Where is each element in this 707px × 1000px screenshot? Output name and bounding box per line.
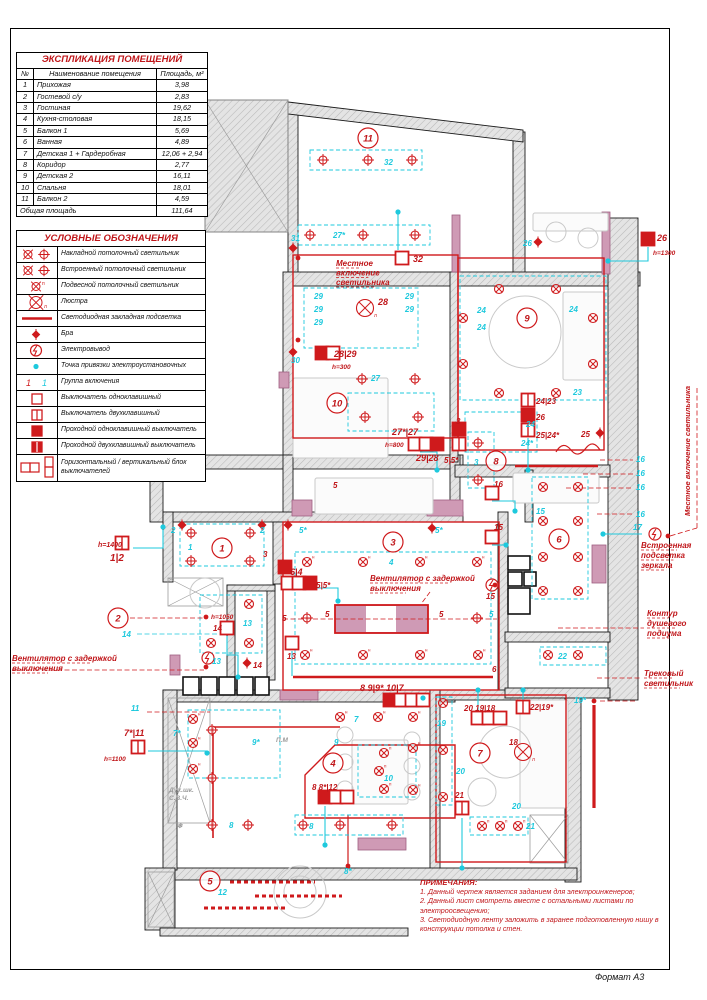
- room-number: 11: [363, 134, 373, 145]
- furniture: [337, 727, 353, 743]
- wall: [160, 928, 408, 936]
- room-table-col-header: №: [17, 68, 34, 79]
- surface-ceiling-light-icon: [334, 819, 346, 831]
- appliance-box: [183, 677, 199, 695]
- appliance-box: [237, 677, 253, 695]
- switch-group-label: h=1050: [211, 614, 234, 621]
- group-number-label: 16: [636, 455, 645, 464]
- anchor-point-icon: [605, 258, 610, 263]
- switch-block-icon: [494, 712, 507, 725]
- recessed-ceiling-light-icon: [589, 314, 598, 323]
- surface-ceiling-light-icon: [206, 772, 218, 784]
- group-number-label: 19*: [574, 696, 587, 705]
- switch-group-label: 26: [535, 413, 545, 422]
- group-number-label: 4: [388, 558, 394, 567]
- annotation-text: Вентилятор с задержкой: [370, 574, 475, 583]
- anchor-point-icon: [160, 524, 165, 529]
- switch-group-label: 5: [333, 481, 338, 490]
- svg-text:п: п: [42, 281, 45, 287]
- group-number-label: 27: [370, 374, 380, 383]
- table-cell: Балкон 2: [34, 194, 157, 205]
- surface-ceiling-light-icon-sup: н: [368, 555, 371, 560]
- note-item: 2. Данный лист смотреть вместе с остальн…: [420, 896, 666, 915]
- table-cell: Кухня-столовая: [34, 114, 157, 125]
- wall: [505, 632, 610, 642]
- table-cell: 4: [17, 114, 34, 125]
- new-partition: [292, 500, 312, 516]
- appliance-label: Дух.шк.: [168, 787, 194, 794]
- table-cell: Спальня: [34, 182, 157, 193]
- red-anchor-dot: [592, 699, 597, 704]
- group-number-label: 12: [218, 888, 227, 897]
- red-anchor-dot: [666, 534, 671, 539]
- surface-ceiling-light-icon: н: [301, 648, 314, 660]
- group-number-label: 24: [525, 420, 535, 429]
- annotation-text: светильника: [336, 278, 390, 287]
- switch-1gang-icon: [486, 531, 499, 544]
- switch-1gang-icon: [486, 531, 499, 544]
- group-number-label: 10: [384, 774, 393, 783]
- switch-block-icon: [494, 712, 507, 725]
- recessed-ceiling-light-icon: [574, 483, 583, 492]
- table-cell: 11: [17, 194, 34, 205]
- surface-ceiling-light-icon-sup: н: [310, 648, 313, 653]
- surface-ceiling-light-icon: н: [473, 555, 486, 567]
- switch-group-label: 24|23: [535, 397, 557, 406]
- legend-item-label: Люстра: [58, 297, 91, 308]
- table-cell: Детская 1 + Гардеробная: [34, 148, 157, 159]
- legend-item: Проходной одноклавишный выключатель: [17, 423, 205, 439]
- chandelier-label: л: [532, 757, 535, 763]
- group-number-label: 24: [476, 306, 486, 315]
- table-cell: 10: [17, 182, 34, 193]
- surface-ceiling-light-icon: н: [409, 710, 422, 722]
- sconce-icon: [242, 658, 251, 669]
- svg-text:л: л: [44, 304, 47, 310]
- group-number-label: 27*: [332, 231, 346, 240]
- surface-ceiling-light-icon-sup: н: [198, 736, 201, 741]
- group-number-label: 5*: [435, 526, 443, 535]
- table-cell: 7: [17, 148, 34, 159]
- recessed-ceiling-light-icon: [18, 263, 56, 278]
- surface-ceiling-light-icon-sup: н: [418, 783, 421, 788]
- anchor-point-icon: [235, 674, 240, 679]
- pass-switch-1gang-icon: [18, 423, 56, 438]
- room-table-col-header: Площадь, м²: [157, 68, 208, 79]
- led-strip-icon: [18, 311, 56, 326]
- legend-item-label: Проходной одноклавишный выключатель: [58, 425, 200, 436]
- legend-item: Встроенный потолочный светильник: [17, 263, 205, 279]
- legend-item: Бра: [17, 327, 205, 343]
- legend-item-label: Накладной потолочный светильник: [58, 249, 182, 260]
- group-number-label: 24*: [520, 439, 534, 448]
- surface-ceiling-light-icon: [206, 819, 218, 831]
- switch-group-label: 22|19*: [529, 703, 554, 712]
- appliance-box: [508, 556, 530, 570]
- group-number-label: 8: [309, 822, 314, 831]
- surface-ceiling-light-icon-sup: н: [198, 762, 201, 767]
- legend-item-label: Точка привязки электроустановочных: [58, 361, 189, 372]
- table-cell: 8: [17, 160, 34, 171]
- red-anchor-dot: [296, 338, 301, 343]
- switch-1gang-icon: [396, 252, 409, 265]
- group-number-label: 2: [170, 526, 176, 535]
- room-number: 6: [556, 535, 562, 546]
- recessed-ceiling-light-icon: [495, 389, 504, 398]
- switch-block-icon: [341, 791, 354, 804]
- surface-ceiling-light-icon-sup: н: [418, 710, 421, 715]
- anchor-point-icon: [395, 209, 400, 214]
- notes-title: ПРИМЕЧАНИЯ:: [420, 878, 666, 887]
- appliance-label: П.М: [276, 737, 288, 744]
- table-cell: 4,89: [157, 137, 208, 148]
- appliance-label: ❄: [177, 823, 183, 830]
- light-group-zone: [188, 710, 280, 778]
- red-anchor-dot: [204, 665, 209, 670]
- surface-ceiling-light-icon: [409, 229, 421, 241]
- table-row: 10Спальня18,01: [17, 182, 208, 193]
- recessed-ceiling-light-icon: [495, 285, 504, 294]
- switch-group-label: 28|29: [333, 349, 357, 359]
- switch-2gang-icon: [18, 407, 56, 422]
- legend-item: 11Группа включения: [17, 375, 205, 391]
- switch-1gang-icon: [221, 622, 234, 635]
- anchor-point-icon: [475, 687, 480, 692]
- surface-ceiling-light-icon: [297, 819, 309, 831]
- switch-group-label: 14: [253, 661, 262, 670]
- electrical-outlet-icon: [649, 528, 661, 540]
- surface-ceiling-light-icon-sup: н: [425, 555, 428, 560]
- switch-group-label: h=300: [332, 364, 351, 371]
- note-item: 3. Светодиодную ленту заложить в заранее…: [420, 915, 666, 934]
- furniture: [513, 473, 599, 503]
- group-number-label: 16: [636, 483, 645, 492]
- anchor-point-icon: [512, 508, 517, 513]
- group-number-label: 30: [291, 356, 300, 365]
- switch-group-label: 29|28: [415, 453, 439, 463]
- anchor-point-icon: [420, 695, 425, 700]
- anchor-point-icon: [335, 598, 340, 603]
- group-number-label: 5*: [299, 526, 307, 535]
- table-cell: 6: [17, 137, 34, 148]
- legend-item: Точка привязки электроустановочных: [17, 359, 205, 375]
- surface-ceiling-light-icon: [472, 437, 484, 449]
- table-cell: 1: [17, 80, 34, 91]
- legend-item-label: Подвесной потолочный светильник: [58, 281, 182, 292]
- group-number-label: 11: [131, 704, 140, 713]
- table-total-row: Общая площадь111,64: [17, 205, 208, 216]
- group-number-label: 9: [334, 738, 339, 747]
- anchor-point-icon: [600, 531, 605, 536]
- group-number-label: 22: [557, 652, 567, 661]
- recessed-ceiling-light-icon: [539, 553, 548, 562]
- switch-group-label: 3: [263, 550, 268, 559]
- switch-1gang-icon: [396, 252, 409, 265]
- group-number-label: 7: [354, 715, 359, 724]
- room-schedule-table: ЭКСПЛИКАЦИЯ ПОМЕЩЕНИЙ №Наименование поме…: [16, 52, 208, 217]
- new-partition: [592, 545, 606, 583]
- table-row: 7Детская 1 + Гардеробная12,06 + 2,94: [17, 148, 208, 159]
- annotation-text: выключения: [12, 664, 63, 673]
- recessed-ceiling-light-icon: [539, 587, 548, 596]
- table-cell: 19,62: [157, 103, 208, 114]
- room-table-col-header: Наименование помещения: [34, 68, 157, 79]
- group-number-label: 24: [476, 323, 486, 332]
- surface-ceiling-light-icon-sup: н: [425, 648, 428, 653]
- group-number-label: 8*: [344, 867, 352, 876]
- legend-item-label: Горизонтальный / вертикальный блок выклю…: [58, 458, 205, 477]
- switch-group-label: 25|24*: [535, 431, 560, 440]
- table-row: 3Гостиная19,62: [17, 103, 208, 114]
- pass-switch-2gang-icon: [18, 439, 56, 454]
- furniture: [468, 778, 496, 806]
- group-number-label: 16: [636, 510, 645, 519]
- annotation-text-vertical: Местное включение светильника: [683, 386, 692, 516]
- group-number-label: 19: [437, 719, 446, 728]
- note-item: 1. Данный чертеж является заданием для э…: [420, 887, 666, 896]
- table-cell: 18,01: [157, 182, 208, 193]
- group-number-label: 20: [511, 802, 521, 811]
- room-number: 10: [332, 399, 343, 410]
- annotation-text: подиума: [647, 629, 682, 638]
- surface-ceiling-light-icon: [304, 229, 316, 241]
- table-cell: Детская 2: [34, 171, 157, 182]
- switch-group-label: 5: [325, 610, 330, 619]
- switch-group-label: 1|2: [110, 553, 124, 564]
- table-cell: Гостиная: [34, 103, 157, 114]
- recessed-ceiling-light-icon: [439, 793, 448, 802]
- recessed-ceiling-light-icon: [574, 587, 583, 596]
- recessed-ceiling-light-icon: [439, 746, 448, 755]
- appliance-box: [508, 588, 530, 614]
- group-number-label: 3: [474, 458, 479, 467]
- switch-2gang-icon: [453, 438, 466, 451]
- group-number-label: 29: [404, 292, 414, 301]
- anchor-point-icon: [503, 542, 508, 547]
- surface-ceiling-light-icon: [185, 555, 197, 567]
- surface-ceiling-light-icon-sup: н: [345, 710, 348, 715]
- switch-group-label: 26: [656, 233, 668, 243]
- surface-ceiling-light-icon: [409, 373, 421, 385]
- wall: [163, 690, 177, 870]
- svg-text:1: 1: [42, 378, 47, 388]
- switch-group-label: 15: [486, 592, 495, 601]
- surface-ceiling-light-icon: н: [374, 710, 387, 722]
- new-partition: [280, 690, 318, 700]
- group-number-label: 31: [291, 234, 300, 243]
- switch-group-label: 25: [580, 430, 590, 439]
- pendant-ceiling-light-icon-sup: п: [487, 819, 490, 824]
- recessed-ceiling-light-icon: [245, 600, 254, 609]
- surface-ceiling-light-icon: н: [359, 648, 372, 660]
- surface-ceiling-light-icon: н: [359, 555, 372, 567]
- group-number-label: 29: [313, 292, 323, 301]
- switch-block-icon: [431, 438, 444, 451]
- legend-item-label: Бра: [58, 329, 76, 340]
- surface-ceiling-light-icon: [206, 724, 218, 736]
- recessed-ceiling-light-icon: [544, 651, 553, 660]
- anchor-point-icon: [204, 750, 209, 755]
- anchor-point-icon: [520, 687, 525, 692]
- pendant-ceiling-light-icon: п: [514, 819, 527, 831]
- switch-group-label: 20 19|18: [463, 704, 496, 713]
- recessed-ceiling-light-icon: [589, 360, 598, 369]
- surface-ceiling-light-icon: [244, 527, 256, 539]
- legend-item: пПодвесной потолочный светильник: [17, 279, 205, 295]
- group-number-label: 17: [633, 523, 642, 532]
- switch-group-label: 32: [413, 254, 423, 264]
- table-cell: 3: [17, 103, 34, 114]
- wall: [145, 868, 175, 930]
- group-number-label: 13: [243, 619, 252, 628]
- switch-group-label: 15: [494, 523, 503, 532]
- table-cell: 16,11: [157, 171, 208, 182]
- switch-group-label: h=800: [385, 442, 404, 449]
- appliance-label: С.В.Ч.: [169, 795, 189, 802]
- appliance-box: [508, 572, 522, 586]
- red-anchor-dot: [204, 615, 209, 620]
- annotation-text: подсветка: [641, 551, 686, 560]
- pendant-ceiling-light-icon-sup: п: [505, 819, 508, 824]
- anchor-point-icon: [525, 467, 530, 472]
- switch-connection-line: [133, 530, 163, 548]
- wall: [513, 132, 525, 282]
- chandelier-icon: [357, 300, 374, 317]
- table-cell: Прихожая: [34, 80, 157, 91]
- new-partition: [358, 838, 406, 850]
- surface-ceiling-light-icon: н: [189, 736, 202, 748]
- drawing-sheet: ЭКСПЛИКАЦИЯ ПОМЕЩЕНИЙ №Наименование поме…: [0, 0, 707, 1000]
- surface-ceiling-light-icon: н: [189, 712, 202, 724]
- switch-group-label: 3: [456, 417, 461, 426]
- table-cell: 18,15: [157, 114, 208, 125]
- switch-group-label: 5: [282, 614, 287, 623]
- switch-block-icon: [431, 438, 444, 451]
- surface-ceiling-light-icon: [386, 819, 398, 831]
- switch-group-label: 6: [492, 665, 497, 674]
- anchor-point-icon: [18, 359, 56, 374]
- pendant-ceiling-light-icon: п: [18, 279, 56, 294]
- group-number-label: 5: [489, 610, 494, 619]
- table-cell: 5,69: [157, 125, 208, 136]
- annotation-text: Контур: [647, 609, 678, 618]
- switch-group-label: 5|5*: [316, 581, 331, 590]
- table-row: 2Гостевой с/у2,83: [17, 91, 208, 102]
- room-number: 3: [390, 538, 396, 549]
- switch-2gang-icon: [132, 741, 145, 754]
- legend-item-label: Выключатель одноклавишный: [58, 393, 164, 404]
- recessed-ceiling-light-icon: [539, 517, 548, 526]
- leader-line: [421, 592, 430, 604]
- group-number-label: 32: [384, 158, 393, 167]
- annotation-text: Встроенная: [641, 541, 692, 550]
- annotation-text: Трековый: [644, 669, 684, 678]
- room-number: 2: [114, 614, 121, 625]
- surface-ceiling-light-icon: [406, 154, 418, 166]
- table-row: 8Коридор2,77: [17, 160, 208, 171]
- switch-1gang-icon: [286, 637, 299, 650]
- table-row: 6Ванная4,89: [17, 137, 208, 148]
- table-cell: Ванная: [34, 137, 157, 148]
- room-table-header: №Наименование помещенияПлощадь, м²: [17, 68, 208, 79]
- switch-group-label: 27*|27: [391, 427, 419, 437]
- switch-group-icon: 11: [18, 375, 56, 390]
- sconce-icon: [18, 327, 56, 342]
- svg-text:1: 1: [26, 378, 31, 388]
- surface-ceiling-light-icon: н: [416, 555, 429, 567]
- surface-ceiling-light-icon: [412, 411, 424, 423]
- table-cell: 4,59: [157, 194, 208, 205]
- recessed-ceiling-light-icon: [459, 314, 468, 323]
- pendant-ceiling-light-icon: п: [496, 819, 509, 831]
- group-number-label: 23: [572, 388, 582, 397]
- group-number-label: 16: [636, 469, 645, 478]
- switch-group-label: 18: [509, 738, 518, 747]
- furniture: [533, 213, 608, 231]
- leader-line: [670, 528, 697, 536]
- room-number: 4: [329, 759, 336, 770]
- group-number-label: 1: [188, 543, 193, 552]
- switch-1gang-icon: [18, 391, 56, 406]
- recessed-ceiling-light-icon: [574, 517, 583, 526]
- surface-ceiling-light-icon: [185, 527, 197, 539]
- table-row: 1Прихожая3,98: [17, 80, 208, 91]
- recessed-ceiling-light-icon: [207, 639, 216, 648]
- switch-1gang-icon: [221, 622, 234, 635]
- group-number-label: 29: [404, 305, 414, 314]
- recessed-ceiling-light-icon: [539, 483, 548, 492]
- surface-ceiling-light-icon: н: [416, 648, 429, 660]
- surface-ceiling-light-icon-sup: н: [312, 555, 315, 560]
- group-number-label: 13: [212, 657, 221, 666]
- switch-1gang-icon: [286, 637, 299, 650]
- legend-item-label: Встроенный потолочный светильник: [58, 265, 189, 276]
- sconce-icon: [595, 428, 604, 439]
- legend-item-label: Проходной двухклавишный выключатель: [58, 441, 199, 452]
- switch-group-label: 5: [439, 610, 444, 619]
- new-partition: [170, 655, 180, 675]
- group-number-label: 26: [522, 239, 532, 248]
- table-cell: Коридор: [34, 160, 157, 171]
- legend-item-label: Светодиодная закладная подсветка: [58, 313, 184, 324]
- surface-ceiling-light-icon: [242, 819, 254, 831]
- furniture: [489, 296, 561, 368]
- pass-switch-icon: [642, 233, 655, 246]
- legend-item-label: Электровывод: [58, 345, 113, 356]
- anchor-point-icon: [322, 842, 327, 847]
- table-cell: 3,98: [157, 80, 208, 91]
- switch-block-icon: [18, 455, 56, 481]
- surface-ceiling-light-icon: [301, 612, 313, 624]
- surface-ceiling-light-icon-sup: н: [483, 648, 486, 653]
- switch-group-label: 14: [213, 624, 222, 633]
- switch-group-label: 8 8*|12: [312, 783, 338, 792]
- surface-ceiling-light-icon: [244, 555, 256, 567]
- group-number-label: 15: [536, 507, 545, 516]
- annotation-text: зеркала: [641, 561, 673, 570]
- surface-ceiling-light-icon: [357, 229, 369, 241]
- group-number-label: 2: [259, 526, 265, 535]
- recessed-ceiling-light-icon: [439, 699, 448, 708]
- table-cell: 2: [17, 91, 34, 102]
- annotation-text: Вентилятор с задержкой: [12, 654, 117, 663]
- group-number-label: 8: [229, 821, 234, 830]
- surface-ceiling-light-icon: н: [474, 648, 487, 660]
- legend-item: лЛюстра: [17, 295, 205, 311]
- table-row: 11Балкон 24,59: [17, 194, 208, 205]
- legend-item: Выключатель двухклавишный: [17, 407, 205, 423]
- legend-item: Выключатель одноклавишный: [17, 391, 205, 407]
